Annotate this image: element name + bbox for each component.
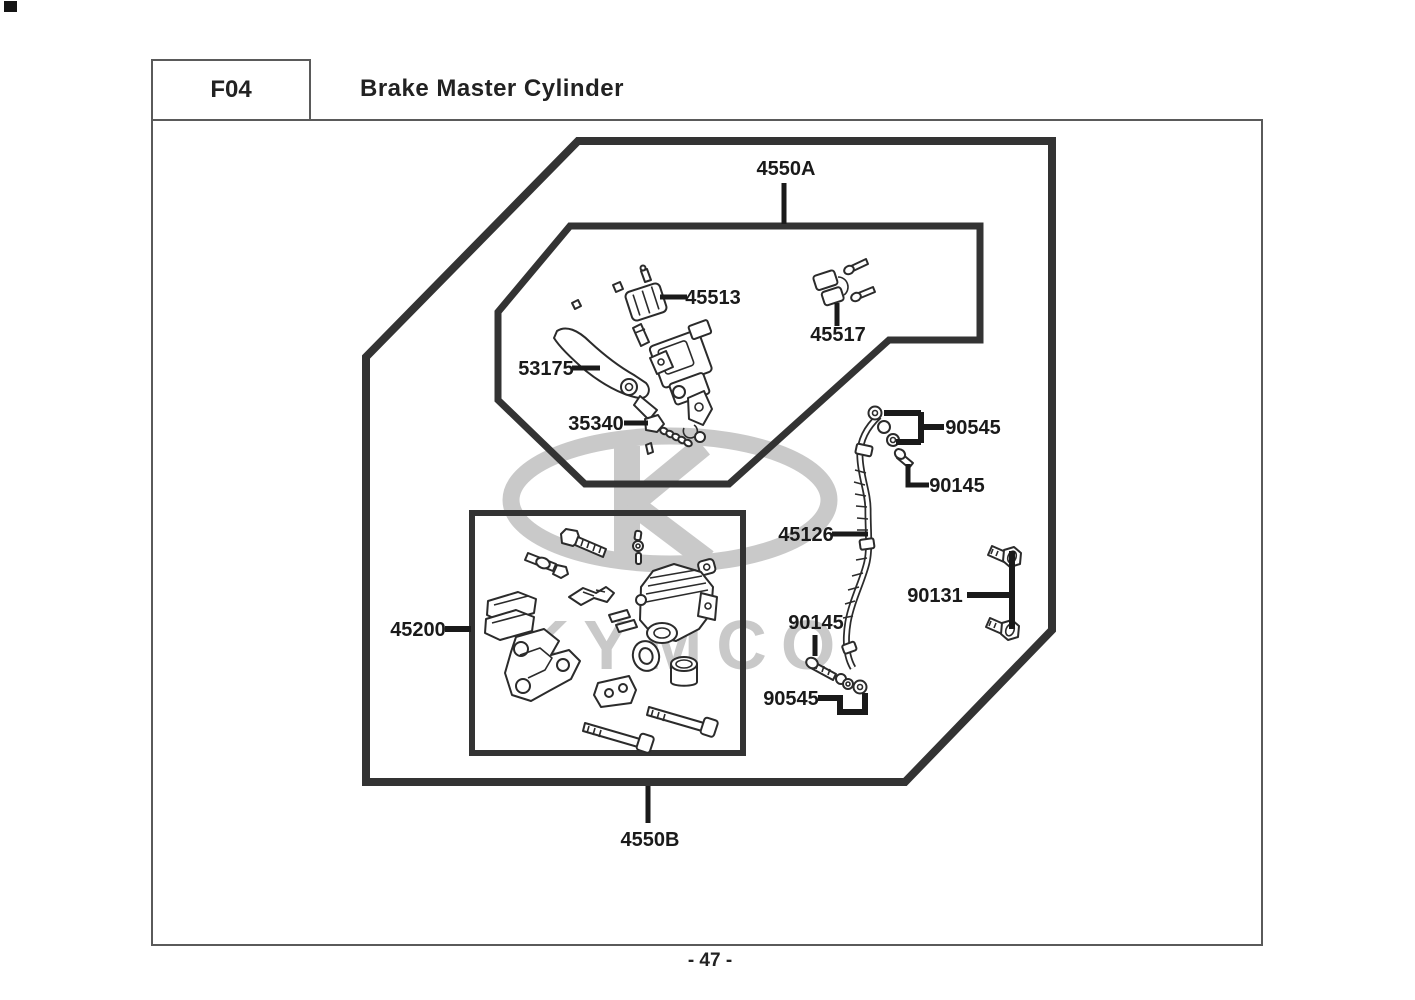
outer-group-outline-4550b [366,141,1052,782]
part-label-90145-2: 90145 [788,612,844,634]
part-label-90545: 90545 [945,417,1001,439]
kymco-watermark: KYMCO [511,436,849,684]
part-holder-45517 [813,259,875,307]
part-label-45200: 45200 [390,619,446,641]
part-label-53175: 53175 [518,358,574,380]
part-brake-hose-45126 [842,407,899,694]
part-label-4550b: 4550B [621,829,680,851]
part-label-35340: 35340 [568,413,624,435]
parts-diagram: KYMCO [0,0,1415,1000]
part-label-90545-2: 90545 [763,688,819,710]
part-cap-45513 [624,282,668,322]
part-label-90131: 90131 [907,585,963,607]
part-label-90145: 90145 [929,475,985,497]
part-label-45513: 45513 [685,287,741,309]
page-number: - 47 - [630,950,790,972]
part-label-4550a: 4550A [757,158,816,180]
part-label-45517: 45517 [810,324,866,346]
catalog-page: F04 Brake Master Cylinder KYMCO [0,0,1415,1000]
part-labels: 4550A 45513 45517 53175 35340 90545 9014… [390,158,1001,851]
part-label-45126: 45126 [778,524,834,546]
